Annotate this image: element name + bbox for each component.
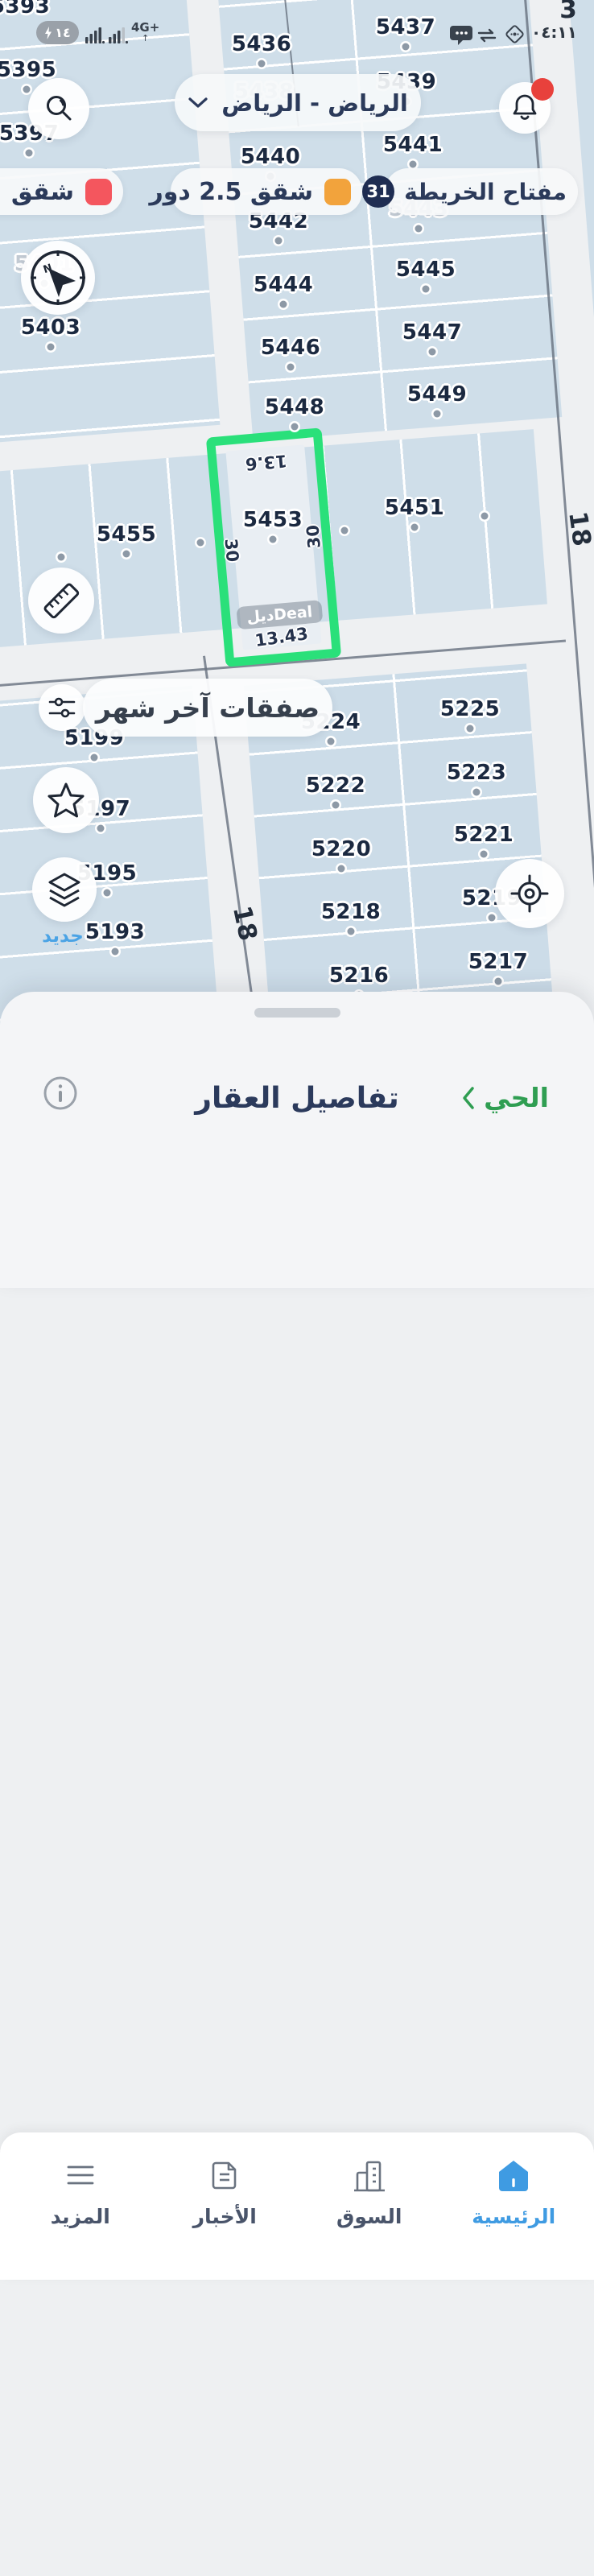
signal-bars-icon (109, 26, 128, 44)
nav-item-home[interactable]: الرئيسية (465, 2157, 562, 2228)
plot-marker-dot (467, 725, 474, 733)
legend-item[interactable]: شقق (0, 168, 123, 215)
plot-label[interactable]: 5222 (306, 774, 365, 798)
data-transfer-icon (476, 28, 497, 43)
new-feature-badge: جديد (42, 926, 84, 947)
battery-indicator: ١٤ (36, 21, 79, 44)
plot-marker-dot (495, 978, 502, 985)
plot-label[interactable]: 5448 (265, 395, 324, 419)
property-bottom-sheet: الحي تفاصيل العقار الرئيسيةالسوقالأخبارا… (0, 992, 594, 1288)
legend-color-swatch (324, 179, 351, 205)
street-number-label: 3 (559, 0, 577, 24)
plot-label[interactable]: 5223 (447, 761, 506, 785)
legend-item[interactable]: شقق 2.5 دور (171, 168, 362, 215)
chevron-back-icon (461, 1086, 476, 1110)
nav-items: الرئيسيةالسوقالأخبارالمزيد (0, 2132, 594, 2228)
plot-label[interactable]: 5393 (0, 0, 50, 19)
nfc-diamond-icon (504, 23, 526, 45)
plot-marker-dot (270, 536, 277, 543)
nav-item-label: المزيد (51, 2205, 110, 2228)
search-icon (43, 93, 74, 124)
battery-percent: ١٤ (55, 25, 71, 40)
network-type: 4G+↑ (131, 23, 159, 43)
plot-marker-dot (26, 150, 33, 157)
plot-label[interactable]: 5445 (396, 258, 456, 282)
plot-marker-dot (473, 789, 481, 796)
neighborhood-back-link[interactable]: الحي (461, 1082, 549, 1113)
last-month-deals-button[interactable]: صفقات آخر شهر (83, 679, 332, 737)
map-key-title: مفتاح الخريطة (404, 179, 567, 205)
plot-marker-dot (411, 524, 419, 531)
clock: ٠٤:١١ (531, 23, 577, 42)
plot-marker-dot (338, 865, 345, 873)
legend-item-label: شقق 2.5 دور (149, 178, 313, 206)
charging-bolt-icon (44, 27, 52, 39)
ruler-button[interactable] (28, 568, 94, 634)
nav-item-label: السوق (336, 2205, 402, 2228)
layers-icon (45, 871, 84, 908)
info-button[interactable] (42, 1075, 79, 1112)
region-selector-dropdown[interactable]: الرياض - الرياض (175, 74, 421, 131)
plot-label[interactable]: 5403 (21, 316, 80, 340)
plot-label[interactable]: 5447 (402, 320, 462, 345)
nav-item-market[interactable]: السوق (321, 2157, 418, 2228)
plot-marker-dot (197, 539, 204, 547)
plot-label[interactable]: 5218 (321, 900, 381, 924)
plot-marker-dot (123, 551, 130, 558)
plot-marker-dot (402, 43, 410, 51)
plot-label[interactable]: 5217 (468, 950, 528, 974)
sheet-title: تفاصيل العقار (195, 1082, 398, 1115)
plot-label[interactable]: 5446 (261, 336, 320, 360)
signal-bars-icon (85, 26, 105, 44)
plot-marker-dot (91, 754, 98, 762)
plot-marker-dot (287, 364, 295, 371)
compass-button[interactable]: N (21, 241, 95, 315)
plot-label[interactable]: 5451 (385, 496, 444, 520)
legend-item-label: شقق (11, 178, 74, 206)
plot-marker-dot (481, 851, 488, 858)
plot-marker-dot (47, 344, 55, 351)
street-number-label: 18 (563, 510, 594, 548)
plot-label[interactable]: 5444 (254, 273, 313, 297)
plot-marker-dot (280, 301, 287, 308)
market-icon (351, 2157, 388, 2194)
plot-marker-dot (481, 513, 489, 520)
upload-arrow-icon: ↑ (142, 33, 149, 43)
plot-marker-dot (58, 554, 65, 561)
plot-label[interactable]: 5441 (383, 133, 443, 157)
plot-marker-dot (104, 890, 111, 897)
plot-marker-dot (415, 225, 423, 233)
plot-label[interactable]: 5436 (232, 32, 291, 56)
notification-badge (531, 78, 554, 101)
plot-label[interactable]: 5395 (0, 58, 56, 82)
ruler-icon (39, 578, 84, 623)
plot-marker-dot (423, 286, 430, 293)
star-icon (47, 782, 85, 819)
chat-bubble-icon (450, 24, 476, 47)
region-selector-label: الرياض - الرياض (221, 89, 408, 117)
plot-label[interactable]: 5437 (376, 15, 435, 39)
plot-label[interactable]: 5455 (97, 522, 156, 547)
more-icon (62, 2157, 99, 2194)
plot-marker-dot (97, 825, 105, 832)
layers-button[interactable] (32, 857, 97, 922)
plot-marker-dot (112, 948, 119, 956)
legend-color-swatch (85, 179, 112, 205)
plot-marker-dot (410, 161, 417, 168)
plot-marker-dot (328, 738, 335, 745)
plot-label[interactable]: 5440 (241, 145, 300, 169)
home-icon (495, 2157, 532, 2194)
plot-marker-dot (332, 802, 340, 809)
sheet-drag-handle[interactable] (254, 1008, 340, 1018)
bottom-navigation-bar: الرئيسيةالسوقالأخبارالمزيد (0, 2132, 594, 2280)
nav-item-news[interactable]: الأخبار (176, 2157, 273, 2228)
plot-label[interactable]: 5453 (243, 508, 303, 532)
map-key[interactable]: مفتاح الخريطة 31 (385, 168, 578, 215)
plot-marker-dot (258, 60, 266, 68)
plot-label[interactable]: 5221 (454, 823, 514, 847)
plot-marker-dot (489, 914, 496, 922)
map-key-count-badge: 31 (362, 175, 394, 208)
news-icon (206, 2157, 243, 2194)
plot-marker-dot (291, 423, 299, 431)
sliders-icon (48, 696, 76, 720)
crosshair-icon (509, 873, 551, 914)
street-number-label: 18 (227, 903, 262, 943)
plot-marker-dot (429, 349, 436, 356)
compass-icon: N (27, 247, 89, 308)
plot-label[interactable]: 5449 (407, 382, 467, 407)
chevron-down-icon (188, 97, 208, 109)
favorites-button[interactable] (33, 767, 99, 833)
plot-label[interactable]: 5216 (329, 964, 389, 988)
my-location-button[interactable] (495, 859, 564, 928)
nav-item-label: الأخبار (193, 2205, 257, 2228)
nav-item-more[interactable]: المزيد (32, 2157, 129, 2228)
plot-label[interactable]: 5225 (440, 697, 500, 721)
plot-marker-dot (348, 928, 355, 935)
plot-label[interactable]: 5220 (311, 837, 371, 861)
last-month-deals-label: صفقات آخر شهر (96, 692, 320, 724)
svg-text:N: N (42, 262, 54, 277)
plot-label[interactable]: 5193 (85, 920, 145, 944)
nav-item-label: الرئيسية (472, 2205, 555, 2228)
plot-marker-dot (23, 86, 31, 93)
deals-filter-button[interactable] (39, 684, 85, 731)
plot-marker-dot (275, 237, 283, 245)
plot-marker-dot (341, 527, 349, 535)
neighborhood-link-label: الحي (484, 1082, 549, 1113)
plot-marker-dot (434, 411, 441, 418)
search-button[interactable] (28, 78, 89, 139)
